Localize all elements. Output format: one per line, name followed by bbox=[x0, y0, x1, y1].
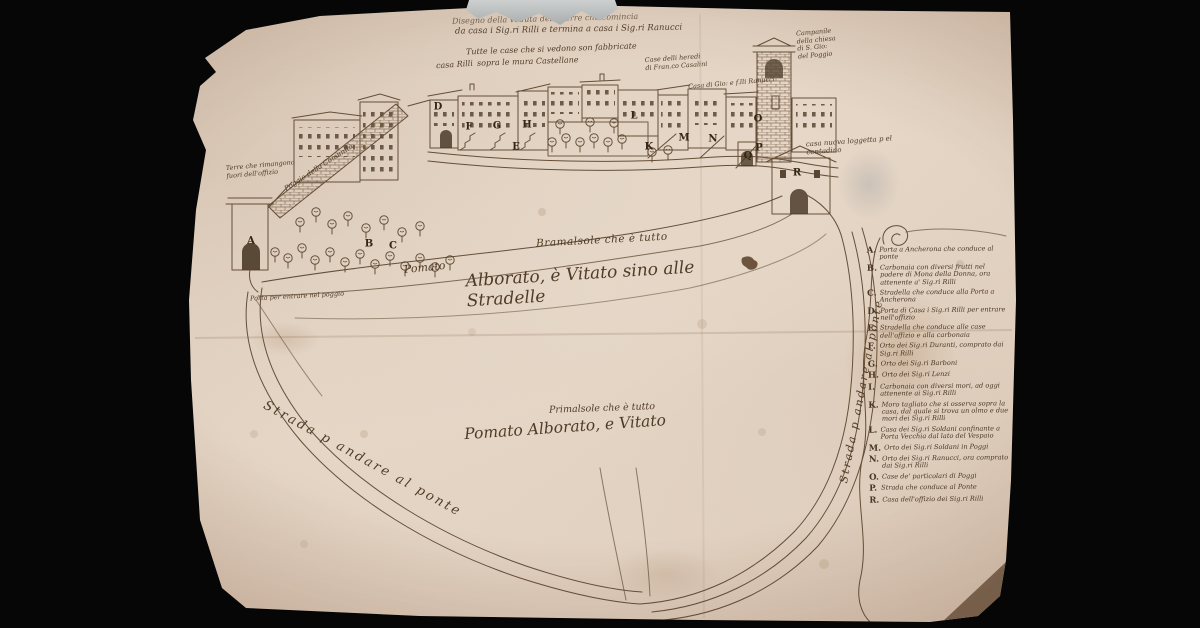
map-letter: O bbox=[754, 114, 763, 125]
legend-entry-letter: K. bbox=[868, 401, 879, 423]
legend-entry-letter: D. bbox=[867, 307, 877, 322]
legend-entry: H. Orto dei Sig.ri Lenzi bbox=[868, 371, 1010, 381]
map-annotation: Campanile della chiesa di S. Gio: del Po… bbox=[796, 25, 858, 61]
legend-entries: A. Porta a Ancherona che conduce al pont… bbox=[867, 245, 1012, 505]
map-letter: R bbox=[793, 168, 801, 179]
legend-entry-letter: A. bbox=[867, 247, 877, 262]
map-letter: C bbox=[389, 241, 397, 252]
legend-entry-text: Orto dei Sig.ri Duranti, comprato dai Si… bbox=[880, 341, 1010, 357]
legend-entry: R. Casa dell'offizio dei Sig.ri Rilli bbox=[869, 495, 1011, 505]
legend-entry-letter: B. bbox=[867, 264, 877, 286]
legend-entry: D. Porta di Casa i Sig.ri Rilli per entr… bbox=[867, 306, 1009, 322]
legend-entry-text: Orto dei Sig.ri Lenzi bbox=[882, 371, 1010, 381]
legend-entry: O. Case de' particolari di Poggi bbox=[869, 472, 1011, 482]
legend-entry-letter: I. bbox=[868, 384, 877, 399]
legend-entry-text: Orto dei Sig.ri Soldani in Poggi bbox=[884, 443, 1011, 453]
map-letter: P bbox=[755, 143, 763, 154]
legend-entry-letter: O. bbox=[869, 473, 879, 482]
legend-entry: L. Casa dei Sig.ri Soldani confinante a … bbox=[869, 425, 1011, 441]
legend-entry-text: Porta di Casa i Sig.ri Rilli per entrare… bbox=[880, 306, 1009, 322]
legend-entry: P. Strada che conduce al Ponte bbox=[869, 484, 1011, 494]
legend-entry-text: Casa dei Sig.ri Soldani confinante a Por… bbox=[881, 425, 1011, 441]
legend-entry: F. Orto dei Sig.ri Duranti, comprato dai… bbox=[868, 341, 1010, 357]
legend-entry-text: Case de' particolari di Poggi bbox=[882, 472, 1011, 482]
map-letter: N bbox=[708, 134, 717, 145]
map-letter: L bbox=[630, 111, 637, 122]
legend-entry: B. Carbonaia con diversi frutti nel pode… bbox=[867, 263, 1009, 287]
legend-entry-text: Stradella che conduce alla Porta a Anche… bbox=[880, 288, 1010, 304]
legend-entry-letter: E. bbox=[867, 325, 877, 340]
legend-entry: M. Orto dei Sig.ri Soldani in Poggi bbox=[869, 443, 1011, 453]
legend-entry-letter: H. bbox=[868, 372, 879, 381]
map-letter: H bbox=[522, 120, 531, 131]
legend-entry-text: Strada che conduce al Ponte bbox=[881, 484, 1011, 494]
map-letter: K bbox=[645, 142, 654, 153]
legend-entry-text: Casa dell'offizio dei Sig.ri Rilli bbox=[882, 495, 1011, 505]
legend-entry-text: Stradella che conduce alle case dell'off… bbox=[880, 324, 1010, 340]
legend-entry-text: Porta a Ancherona che conduce al ponte bbox=[879, 245, 1009, 261]
legend-entry-letter: G. bbox=[868, 361, 878, 370]
legend-entry: E. Stradella che conduce alle case dell'… bbox=[867, 324, 1009, 340]
legend-entry-text: Moro tagliato che si osserva sopra la ca… bbox=[882, 400, 1011, 423]
manuscript-map-screenshot: Disegno della veduta delle terre che com… bbox=[0, 0, 1200, 628]
map-letter: M bbox=[678, 133, 689, 144]
foxing-spots bbox=[0, 0, 4, 4]
map-letter: F bbox=[465, 122, 472, 133]
legend-entry-letter: R. bbox=[869, 496, 879, 505]
legend-entry-letter: P. bbox=[869, 485, 878, 494]
legend: A. Porta a Ancherona che conduce al pont… bbox=[867, 245, 1012, 508]
map-letter: A bbox=[247, 236, 255, 247]
legend-entry-letter: C. bbox=[867, 290, 877, 305]
legend-entry: N. Orto dei Sig.ri Ranucci, ora comprato… bbox=[869, 454, 1011, 470]
legend-entry-letter: N. bbox=[869, 456, 879, 471]
manuscript-paper: Disegno della veduta delle terre che com… bbox=[0, 0, 1200, 628]
map-letter: G bbox=[493, 121, 502, 132]
map-letter: D bbox=[434, 102, 443, 113]
legend-entry: K. Moro tagliato che si osserva sopra la… bbox=[868, 400, 1010, 424]
legend-entry-letter: F. bbox=[868, 343, 877, 358]
legend-entry-text: Orto dei Sig.ri Barboni bbox=[881, 359, 1010, 369]
legend-entry-letter: L. bbox=[869, 426, 878, 441]
legend-entry: A. Porta a Ancherona che conduce al pont… bbox=[867, 245, 1009, 261]
map-drawing bbox=[0, 0, 1200, 628]
legend-entry: C. Stradella che conduce alla Porta a An… bbox=[867, 288, 1009, 304]
legend-entry-letter: M. bbox=[869, 444, 881, 453]
map-letter: B bbox=[365, 239, 373, 250]
legend-entry: G. Orto dei Sig.ri Barboni bbox=[868, 359, 1010, 369]
legend-entry-text: Orto dei Sig.ri Ranucci, ora comprato da… bbox=[882, 454, 1011, 470]
legend-entry: I. Carbonaia con diversi mori, ad oggi a… bbox=[868, 382, 1010, 398]
map-letter: Q bbox=[744, 151, 753, 162]
legend-entry-text: Carbonaia con diversi mori, ad oggi atte… bbox=[880, 382, 1010, 398]
map-letter: E bbox=[512, 142, 520, 153]
legend-entry-text: Carbonaia con diversi frutti nel podere … bbox=[880, 263, 1009, 286]
